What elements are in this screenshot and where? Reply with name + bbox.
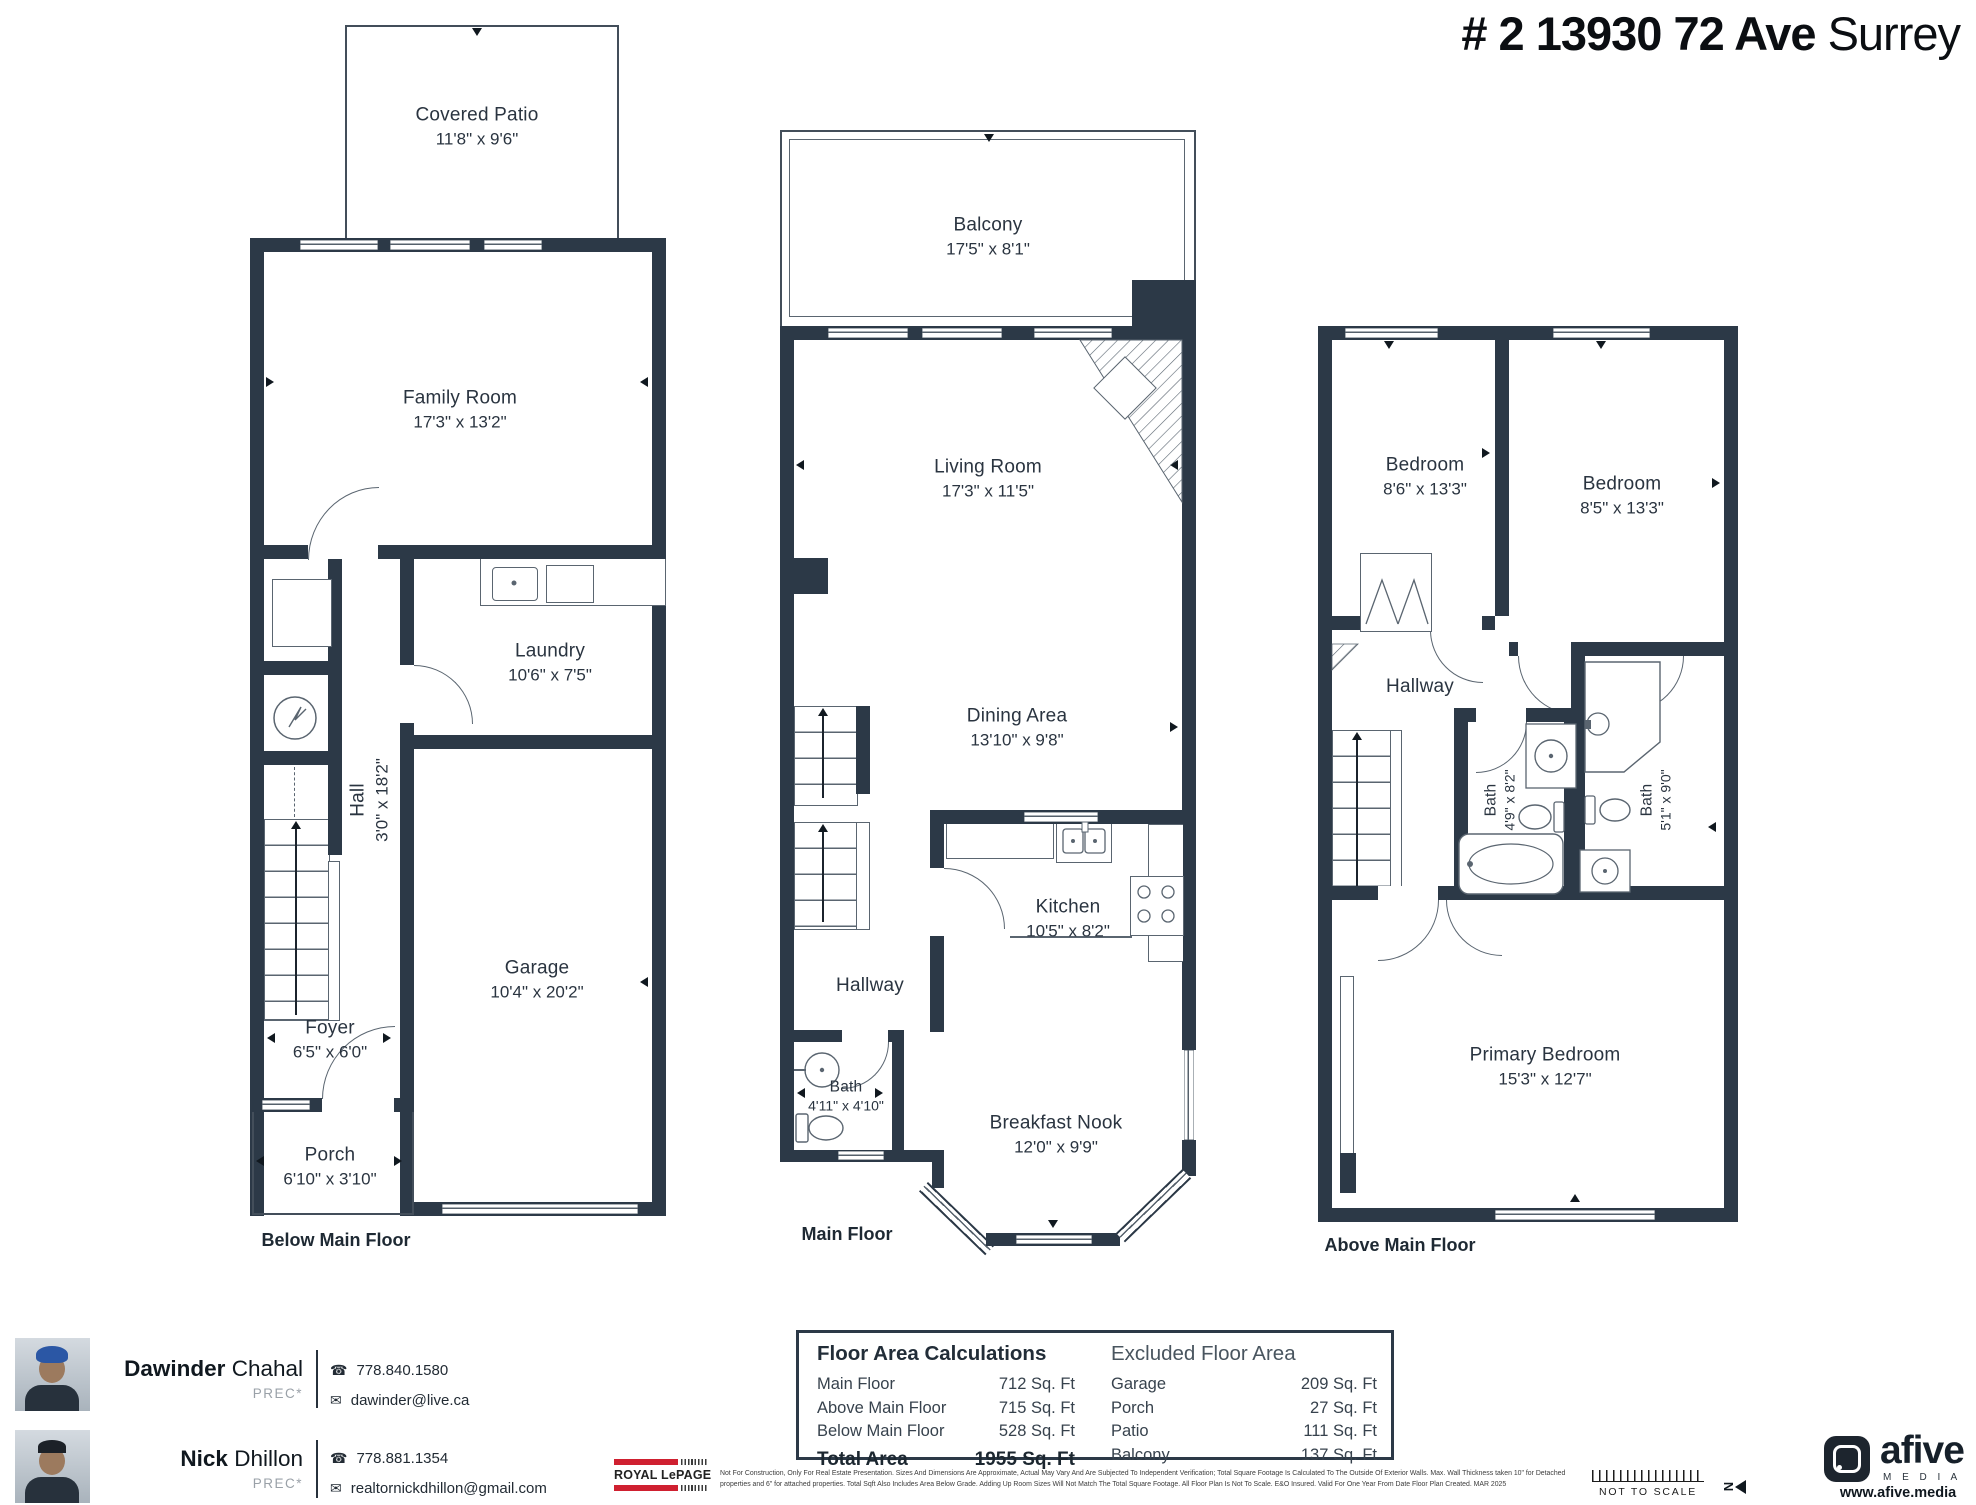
area-row: Below Main Floor528 Sq. Ft bbox=[817, 1422, 1075, 1441]
dimension-arrow-icon bbox=[640, 377, 648, 387]
agent-phone: ☎778.840.1580 bbox=[330, 1362, 448, 1379]
bathtub bbox=[1459, 834, 1563, 894]
stair-rail bbox=[856, 822, 870, 930]
wall bbox=[932, 1162, 944, 1188]
window bbox=[262, 1100, 310, 1110]
dimension-arrow-icon bbox=[267, 1033, 275, 1043]
wall bbox=[1454, 708, 1468, 900]
door-arc-icon bbox=[308, 487, 379, 560]
room-label-garage: Garage10'4" x 20'2" bbox=[490, 958, 583, 1003]
room-label-foyer: Foyer6'5" x 6'0" bbox=[293, 1018, 367, 1063]
afive-url: www.afive.media bbox=[1820, 1485, 1976, 1501]
dimension-arrow-icon bbox=[1708, 822, 1716, 832]
door-opening bbox=[842, 1030, 888, 1042]
sliding-door bbox=[1034, 328, 1112, 338]
room-label-family-room: Family Room17'3" x 13'2" bbox=[403, 388, 517, 433]
staircase bbox=[1332, 730, 1392, 900]
wall bbox=[1340, 1153, 1356, 1193]
stair-direction-line bbox=[822, 714, 824, 798]
room-label-dining-area: Dining Area13'10" x 9'8" bbox=[967, 706, 1067, 751]
dimension-arrow-icon bbox=[383, 1033, 391, 1043]
wall bbox=[1495, 340, 1509, 616]
stair-rail bbox=[328, 861, 340, 1021]
room-label-bedroom-1: Bedroom8'6" x 13'3" bbox=[1383, 455, 1467, 500]
hair bbox=[38, 1440, 66, 1453]
mail-icon: ✉ bbox=[330, 1392, 342, 1408]
floor-plan-page: { "title": {"address": "# 2 13930 72 Ave… bbox=[0, 0, 1976, 1505]
room-label-primary-bedroom: Primary Bedroom15'3" x 12'7" bbox=[1470, 1045, 1621, 1090]
room-label-kitchen: Kitchen10'5" x 8'2" bbox=[1026, 897, 1110, 942]
window bbox=[300, 240, 378, 250]
staircase bbox=[264, 819, 330, 1021]
window bbox=[1184, 1050, 1194, 1140]
room-label-living-room: Living Room17'3" x 11'5" bbox=[934, 457, 1042, 502]
door-opening bbox=[1518, 642, 1576, 656]
dimension-arrow-icon bbox=[394, 1156, 402, 1166]
garage-door bbox=[442, 1204, 638, 1214]
agent-phone: ☎778.881.1354 bbox=[330, 1450, 448, 1467]
bay-window-wall bbox=[1116, 1169, 1191, 1242]
wall bbox=[892, 1030, 904, 1162]
wall bbox=[328, 675, 342, 855]
door-arc-icon bbox=[944, 868, 1005, 929]
bay-window-wall bbox=[919, 1182, 994, 1255]
mail-icon: ✉ bbox=[330, 1480, 342, 1496]
dimension-arrow-icon bbox=[1596, 341, 1606, 349]
closet-outline bbox=[1360, 553, 1432, 632]
toilet-bowl bbox=[1519, 805, 1551, 829]
room-label-hall: Hall3'0" x 18'2" bbox=[348, 758, 393, 842]
bathroom-sink bbox=[1592, 858, 1618, 884]
dimension-arrow-icon bbox=[472, 28, 482, 36]
area-calculations-title: Floor Area Calculations bbox=[817, 1342, 1046, 1366]
not-to-scale-label: NOT TO SCALE bbox=[1586, 1486, 1710, 1498]
wall bbox=[1454, 886, 1724, 900]
room-label-porch: Porch6'10" x 3'10" bbox=[283, 1145, 376, 1190]
wall bbox=[1132, 280, 1196, 326]
agent-photo-dawinder bbox=[15, 1338, 90, 1411]
agent-designation: PREC* bbox=[93, 1386, 303, 1401]
divider bbox=[316, 1350, 318, 1408]
window bbox=[828, 328, 908, 338]
door-arc-icon bbox=[1518, 656, 1577, 715]
window bbox=[484, 240, 542, 250]
window bbox=[1016, 1235, 1092, 1244]
door-opening bbox=[400, 665, 414, 723]
kitchen-sink-counter bbox=[1056, 824, 1112, 863]
hatch-corner bbox=[1332, 644, 1358, 670]
area-row: Garage209 Sq. Ft bbox=[1111, 1375, 1377, 1394]
door-arc-icon bbox=[1378, 900, 1439, 961]
door-arc-icon bbox=[1446, 900, 1502, 956]
room-label-b edroom-2: Bedroom8'5" x 13'3" bbox=[1580, 474, 1664, 519]
room-label-bath: Bath4'11" x 4'10" bbox=[808, 1079, 884, 1114]
floor-caption-main: Main Floor bbox=[802, 1224, 893, 1245]
staircase-lower-run bbox=[794, 822, 858, 930]
stair-direction-line bbox=[1356, 738, 1358, 890]
page-title: # 2 13930 72 AveSurrey bbox=[1461, 6, 1960, 61]
toilet-tank bbox=[1554, 802, 1564, 832]
wall bbox=[930, 936, 944, 1032]
window bbox=[838, 1151, 884, 1160]
excluded-area-rows: Garage209 Sq. Ft Porch27 Sq. Ft Patio111… bbox=[1111, 1375, 1377, 1469]
dimension-arrow-icon bbox=[266, 377, 274, 387]
floor-plan-below-main: Covered Patio11'8" x 9'6" Family Room17'… bbox=[250, 25, 666, 1235]
window bbox=[1345, 328, 1438, 338]
pass-through bbox=[1024, 812, 1098, 822]
room-label-hallway: Hallway bbox=[836, 975, 904, 997]
area-row: Patio111 Sq. Ft bbox=[1111, 1422, 1377, 1441]
agent-designation: PREC* bbox=[93, 1476, 303, 1491]
window-column bbox=[1340, 976, 1354, 1155]
wall bbox=[652, 238, 666, 1216]
agent-email: ✉realtornickdhillon@gmail.com bbox=[330, 1480, 547, 1497]
window bbox=[1553, 328, 1650, 338]
room-label-bath-2: Bath5'1" x 9'0" bbox=[1639, 769, 1674, 830]
room-label-covered-patio: Covered Patio11'8" x 9'6" bbox=[415, 105, 538, 150]
bathroom-sink bbox=[1587, 713, 1609, 735]
wall bbox=[794, 558, 828, 594]
door-opening bbox=[1476, 708, 1526, 722]
closet-shelf bbox=[272, 579, 332, 647]
laundry-sink bbox=[492, 567, 538, 601]
wall bbox=[904, 1150, 944, 1162]
stair-direction-line bbox=[295, 827, 297, 1015]
dimension-arrow-icon bbox=[1048, 1220, 1058, 1228]
wall bbox=[780, 326, 794, 1162]
dimension-arrow-icon bbox=[640, 977, 648, 987]
area-row: Balcony137 Sq. Ft bbox=[1111, 1446, 1377, 1465]
door-opening bbox=[1378, 886, 1438, 900]
floor-caption-above: Above Main Floor bbox=[1324, 1235, 1475, 1256]
door-opening bbox=[322, 1098, 394, 1112]
wall bbox=[1318, 326, 1332, 1222]
room-label-balcony: Balcony17'5" x 8'1" bbox=[946, 215, 1030, 260]
phone-icon: ☎ bbox=[330, 1362, 347, 1378]
stair-void-hatch bbox=[1080, 340, 1182, 502]
stair-rail bbox=[1390, 730, 1402, 900]
door-arc-icon bbox=[1628, 656, 1684, 712]
dimension-arrow-icon bbox=[1712, 478, 1720, 488]
area-row: Porch27 Sq. Ft bbox=[1111, 1399, 1377, 1418]
floor-area-box: Floor Area Calculations Excluded Floor A… bbox=[796, 1330, 1394, 1460]
wall bbox=[856, 706, 870, 794]
title-address: # 2 13930 72 Ave bbox=[1461, 7, 1815, 60]
afive-wordmark: afive bbox=[1880, 1429, 1964, 1473]
room-label-breakfast-nook: Breakfast Nook12'0" x 9'9" bbox=[990, 1113, 1123, 1158]
dimension-arrow-icon bbox=[1570, 1194, 1580, 1202]
bathroom-sink bbox=[1535, 740, 1567, 772]
title-city: Surrey bbox=[1828, 7, 1960, 60]
area-row: Above Main Floor715 Sq. Ft bbox=[817, 1399, 1075, 1418]
floor-plan-main: Balcony17'5" x 8'1" Living Room17'3" x 1… bbox=[780, 130, 1196, 1290]
room-label-laundry: Laundry10'6" x 7'5" bbox=[508, 641, 592, 686]
door-arc-icon bbox=[414, 665, 473, 724]
scale-ruler-icon bbox=[1592, 1470, 1704, 1482]
royal-lepage-wordmark: ROYAL LePAGE bbox=[614, 1468, 711, 1482]
dimension-arrow-icon bbox=[797, 1088, 805, 1098]
window bbox=[390, 240, 470, 250]
disclaimer-text: Not For Construction, Only For Real Esta… bbox=[720, 1468, 1592, 1490]
agent-name: Nick Dhillon bbox=[93, 1446, 303, 1472]
royal-lepage-logo: ROYAL LePAGE bbox=[614, 1459, 710, 1493]
wall bbox=[1571, 642, 1585, 900]
dimension-arrow-icon bbox=[1170, 460, 1178, 470]
wall bbox=[1182, 326, 1196, 1050]
room-label-hallway: Hallway bbox=[1386, 676, 1454, 698]
dimension-arrow-icon bbox=[1170, 722, 1178, 732]
stair-overhead-line bbox=[294, 767, 295, 817]
area-row: Main Floor712 Sq. Ft bbox=[817, 1375, 1075, 1394]
door-arc-icon bbox=[1476, 722, 1527, 773]
window bbox=[922, 328, 1002, 338]
turban bbox=[36, 1346, 68, 1363]
stair-direction-arrow-icon bbox=[818, 708, 828, 716]
washer bbox=[546, 565, 594, 603]
stove bbox=[1130, 876, 1184, 936]
window bbox=[1495, 1210, 1655, 1220]
dimension-arrow-icon bbox=[256, 1156, 264, 1166]
wall bbox=[930, 810, 944, 868]
dimension-arrow-icon bbox=[796, 460, 804, 470]
dimension-arrow-icon bbox=[1384, 341, 1394, 349]
wall bbox=[250, 238, 264, 1216]
wall bbox=[250, 661, 342, 675]
door-opening bbox=[1430, 616, 1482, 630]
stair-direction-arrow-icon bbox=[1352, 732, 1362, 740]
agent-name: Dawinder Chahal bbox=[93, 1356, 303, 1382]
stair-direction-arrow-icon bbox=[818, 824, 828, 832]
wall bbox=[400, 735, 666, 749]
excluded-area-title: Excluded Floor Area bbox=[1111, 1342, 1296, 1366]
afive-media-label: M E D I A bbox=[1883, 1472, 1961, 1483]
floor-plan-above-main: Bedroom8'6" x 13'3" Bedroom8'5" x 13'3" … bbox=[1318, 326, 1738, 1266]
stair-direction-line bbox=[822, 830, 824, 922]
dimension-arrow-icon bbox=[1482, 448, 1490, 458]
toilet-tank bbox=[796, 1114, 808, 1142]
area-calculations-rows: Main Floor712 Sq. Ft Above Main Floor715… bbox=[817, 1375, 1075, 1471]
phone-icon: ☎ bbox=[330, 1450, 347, 1466]
kitchen-counter bbox=[946, 824, 1054, 859]
wall bbox=[1724, 326, 1738, 1222]
north-arrow-icon: N bbox=[1724, 1479, 1746, 1494]
dimension-arrow-icon bbox=[984, 134, 994, 142]
afive-media-logo-icon bbox=[1824, 1436, 1870, 1482]
divider bbox=[316, 1440, 318, 1498]
toilet-bowl bbox=[809, 1116, 843, 1140]
water-heater-icon bbox=[274, 697, 316, 739]
staircase-upper-run bbox=[794, 706, 858, 806]
agent-photo-nick bbox=[15, 1430, 90, 1503]
toilet-bowl bbox=[1600, 799, 1630, 821]
floor-caption-below: Below Main Floor bbox=[261, 1230, 410, 1251]
stair-direction-arrow-icon bbox=[291, 821, 301, 829]
agent-email: ✉dawinder@live.ca bbox=[330, 1392, 469, 1409]
toilet-tank bbox=[1585, 796, 1595, 824]
room-label-bath-1: Bath4'9" x 8'2" bbox=[1483, 769, 1518, 830]
